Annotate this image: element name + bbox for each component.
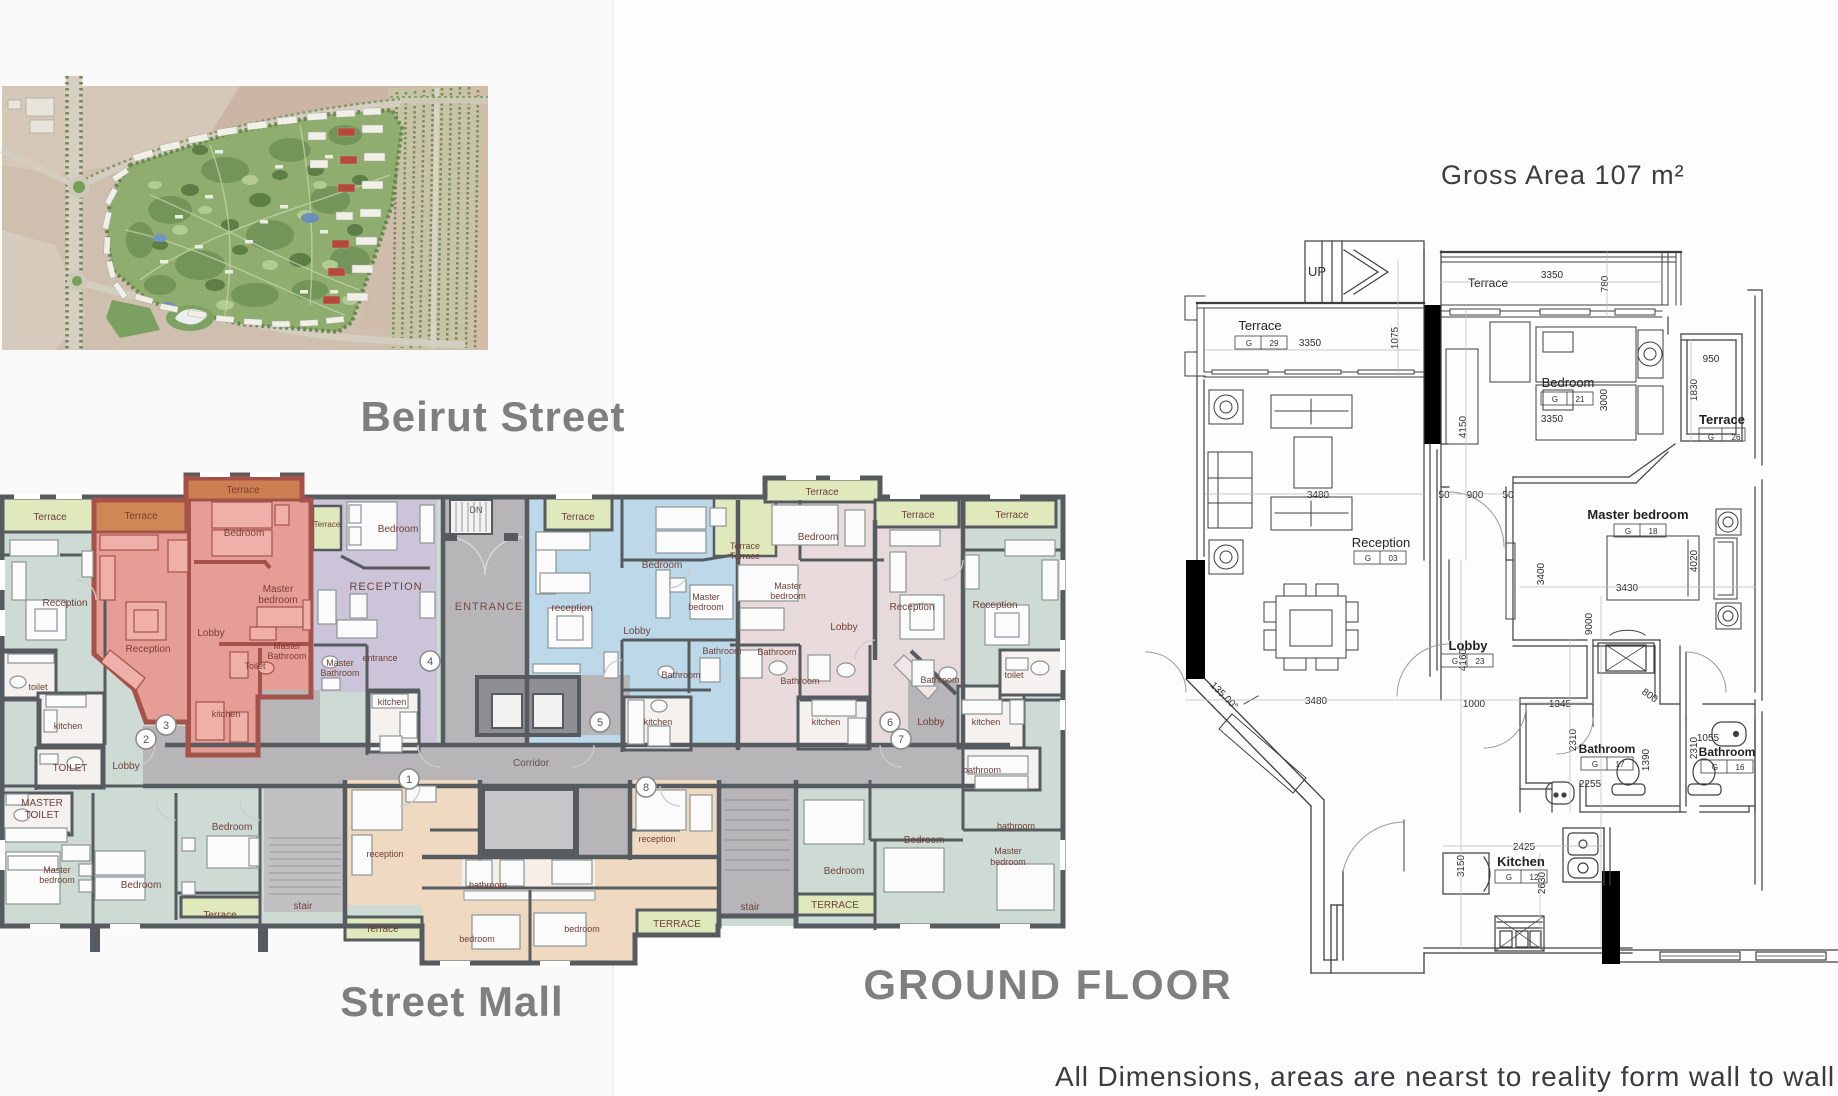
- svg-text:bedroom: bedroom: [258, 595, 297, 606]
- svg-text:MASTER: MASTER: [21, 798, 63, 809]
- svg-text:toilet: toilet: [28, 682, 48, 692]
- svg-text:kitchen: kitchen: [644, 717, 673, 727]
- svg-text:3400: 3400: [1536, 562, 1547, 585]
- svg-text:reception: reception: [366, 849, 403, 859]
- svg-text:Terrace: Terrace: [33, 512, 67, 523]
- svg-text:Lobby: Lobby: [830, 622, 857, 633]
- svg-text:RECEPTION: RECEPTION: [349, 581, 422, 593]
- svg-text:Master: Master: [994, 846, 1022, 856]
- svg-text:stair: stair: [294, 901, 314, 912]
- svg-text:Reception: Reception: [125, 644, 170, 655]
- svg-text:Bathroom: Bathroom: [757, 647, 796, 657]
- svg-text:5: 5: [597, 717, 603, 729]
- svg-text:18: 18: [1649, 527, 1658, 536]
- svg-text:16: 16: [1736, 763, 1745, 772]
- svg-text:G: G: [1708, 433, 1714, 442]
- svg-text:50: 50: [1502, 490, 1514, 501]
- svg-text:2255: 2255: [1579, 779, 1602, 790]
- svg-text:Bathroom: Bathroom: [661, 670, 700, 680]
- svg-text:Bedroom: Bedroom: [904, 835, 945, 846]
- svg-text:Terrace: Terrace: [1699, 412, 1745, 427]
- svg-text:Terrace: Terrace: [1238, 318, 1281, 333]
- svg-text:1055: 1055: [1697, 733, 1720, 744]
- svg-text:2: 2: [143, 734, 149, 746]
- svg-text:Master bedroom: Master bedroom: [1587, 507, 1688, 522]
- svg-text:toilet: toilet: [1004, 670, 1024, 680]
- svg-text:Reception: Reception: [972, 600, 1017, 611]
- svg-text:Gross Area 107 m²: Gross Area 107 m²: [1441, 160, 1685, 190]
- svg-text:All Dimensions, areas are near: All Dimensions, areas are nearst to real…: [1055, 1061, 1835, 1092]
- svg-text:G: G: [1592, 760, 1598, 769]
- svg-text:G: G: [1452, 657, 1458, 666]
- svg-text:Master: Master: [326, 658, 354, 668]
- svg-text:Toilet: Toilet: [244, 661, 266, 671]
- svg-text:3350: 3350: [1541, 270, 1564, 281]
- svg-text:bathroom: bathroom: [469, 880, 507, 890]
- svg-text:Terrace: Terrace: [901, 510, 935, 521]
- svg-text:Bedroom: Bedroom: [642, 560, 683, 571]
- svg-text:bathroom: bathroom: [963, 765, 1001, 775]
- svg-text:Bathroom: Bathroom: [920, 675, 959, 685]
- svg-text:bedroom: bedroom: [770, 591, 806, 601]
- svg-text:Lobby: Lobby: [623, 626, 650, 637]
- svg-text:3430: 3430: [1616, 583, 1639, 594]
- svg-text:21: 21: [1576, 395, 1585, 404]
- svg-text:Lobby: Lobby: [112, 761, 139, 772]
- svg-text:Terrace: Terrace: [203, 910, 237, 921]
- svg-text:DN: DN: [470, 505, 483, 515]
- svg-text:Terrace: Terrace: [995, 510, 1029, 521]
- svg-text:1: 1: [406, 774, 412, 786]
- svg-text:entrance: entrance: [362, 653, 397, 663]
- svg-text:03: 03: [1389, 554, 1398, 563]
- svg-text:26: 26: [1732, 433, 1741, 442]
- svg-text:Terrace: Terrace: [314, 520, 341, 529]
- svg-text:bedroom: bedroom: [688, 602, 724, 612]
- svg-text:Bedroom: Bedroom: [121, 880, 162, 891]
- svg-text:kitchen: kitchen: [54, 721, 83, 731]
- svg-text:GROUND FLOOR: GROUND FLOOR: [863, 961, 1232, 1008]
- svg-text:2425: 2425: [1513, 842, 1536, 853]
- svg-text:Master: Master: [692, 592, 720, 602]
- svg-text:Lobby: Lobby: [197, 628, 224, 639]
- svg-text:Bathroom: Bathroom: [1579, 742, 1636, 756]
- svg-text:4: 4: [427, 656, 433, 668]
- svg-text:3480: 3480: [1305, 696, 1328, 707]
- svg-text:bedroom: bedroom: [564, 924, 600, 934]
- svg-text:Corridor: Corridor: [513, 758, 550, 769]
- svg-text:780: 780: [1600, 275, 1611, 292]
- svg-text:bedroom: bedroom: [990, 857, 1026, 867]
- svg-text:Master: Master: [263, 584, 294, 595]
- svg-text:Bathroom: Bathroom: [1699, 745, 1756, 759]
- svg-text:Bedroom: Bedroom: [824, 866, 865, 877]
- svg-text:Terrace: Terrace: [365, 924, 399, 935]
- svg-text:bathroom: bathroom: [997, 821, 1035, 831]
- svg-text:Terrace: Terrace: [561, 512, 595, 523]
- svg-text:8: 8: [643, 782, 649, 794]
- svg-text:Master: Master: [774, 581, 802, 591]
- svg-text:Bedroom: Bedroom: [798, 532, 839, 543]
- svg-text:TERRACE: TERRACE: [653, 919, 701, 930]
- svg-text:6: 6: [887, 717, 893, 729]
- svg-text:Street Mall: Street Mall: [340, 978, 563, 1025]
- svg-text:reception: reception: [638, 834, 675, 844]
- svg-text:Bedroom: Bedroom: [378, 524, 419, 535]
- svg-text:3480: 3480: [1307, 490, 1330, 501]
- svg-text:Master: Master: [43, 865, 71, 875]
- svg-text:Terrace: Terrace: [1468, 276, 1508, 290]
- svg-text:kitchen: kitchen: [378, 697, 407, 707]
- svg-text:G: G: [1625, 527, 1631, 536]
- svg-text:Reception: Reception: [889, 602, 934, 613]
- svg-text:3000: 3000: [1599, 388, 1610, 411]
- svg-text:Lobby: Lobby: [1449, 638, 1489, 653]
- svg-text:900: 900: [1467, 490, 1484, 501]
- svg-text:TOILET: TOILET: [25, 810, 60, 821]
- svg-text:4150: 4150: [1458, 415, 1469, 438]
- svg-text:4020: 4020: [1689, 549, 1700, 572]
- svg-text:kitchen: kitchen: [972, 717, 1001, 727]
- svg-text:Bathroom: Bathroom: [780, 676, 819, 686]
- svg-text:9000: 9000: [1584, 612, 1595, 635]
- svg-text:bedroom: bedroom: [39, 875, 75, 885]
- svg-text:3: 3: [163, 720, 169, 732]
- svg-text:UP: UP: [1308, 264, 1326, 279]
- svg-text:23: 23: [1476, 657, 1485, 666]
- svg-text:Bedroom: Bedroom: [1542, 375, 1595, 390]
- svg-text:G: G: [1365, 554, 1371, 563]
- svg-text:Bathroom: Bathroom: [267, 651, 306, 661]
- svg-text:kitchen: kitchen: [212, 709, 241, 719]
- svg-text:Bedroom: Bedroom: [212, 822, 253, 833]
- svg-text:G: G: [1552, 395, 1558, 404]
- svg-text:kitchen: kitchen: [812, 717, 841, 727]
- svg-text:1000: 1000: [1463, 699, 1486, 710]
- svg-text:G: G: [1246, 339, 1252, 348]
- svg-text:G: G: [1712, 763, 1718, 772]
- svg-text:TERRACE: TERRACE: [811, 900, 859, 911]
- svg-text:3150: 3150: [1456, 854, 1467, 877]
- svg-text:Reception: Reception: [1352, 535, 1411, 550]
- svg-text:Bathroom: Bathroom: [702, 646, 741, 656]
- svg-text:Bathroom: Bathroom: [320, 668, 359, 678]
- svg-text:1075: 1075: [1390, 326, 1401, 349]
- svg-text:950: 950: [1703, 354, 1720, 365]
- svg-text:29: 29: [1270, 339, 1279, 348]
- svg-text:ENTRANCE: ENTRANCE: [455, 601, 524, 613]
- svg-text:Terrace: Terrace: [805, 487, 839, 498]
- svg-text:Terrace: Terrace: [226, 485, 260, 496]
- svg-text:17: 17: [1616, 760, 1625, 769]
- svg-text:Reception: Reception: [42, 598, 87, 609]
- svg-text:12: 12: [1530, 873, 1539, 882]
- svg-text:TOILET: TOILET: [53, 763, 88, 774]
- svg-text:1345: 1345: [1549, 699, 1572, 710]
- svg-text:Lobby: Lobby: [917, 717, 944, 728]
- svg-text:1390: 1390: [1641, 748, 1652, 771]
- svg-text:3350: 3350: [1541, 414, 1564, 425]
- svg-text:Terrace: Terrace: [124, 511, 158, 522]
- svg-text:Terrace: Terrace: [730, 541, 760, 551]
- svg-text:stair: stair: [741, 902, 761, 913]
- svg-text:Bedroom: Bedroom: [224, 528, 265, 539]
- svg-text:3350: 3350: [1299, 338, 1322, 349]
- svg-text:Master: Master: [273, 641, 301, 651]
- svg-text:7: 7: [898, 734, 904, 746]
- svg-text:reception: reception: [551, 603, 592, 614]
- svg-text:Beirut Street: Beirut Street: [360, 393, 625, 440]
- svg-text:bedroom: bedroom: [459, 934, 495, 944]
- svg-text:Terrace: Terrace: [730, 551, 760, 561]
- svg-text:Kitchen: Kitchen: [1497, 854, 1545, 869]
- svg-text:G: G: [1506, 873, 1512, 882]
- svg-text:50: 50: [1438, 490, 1450, 501]
